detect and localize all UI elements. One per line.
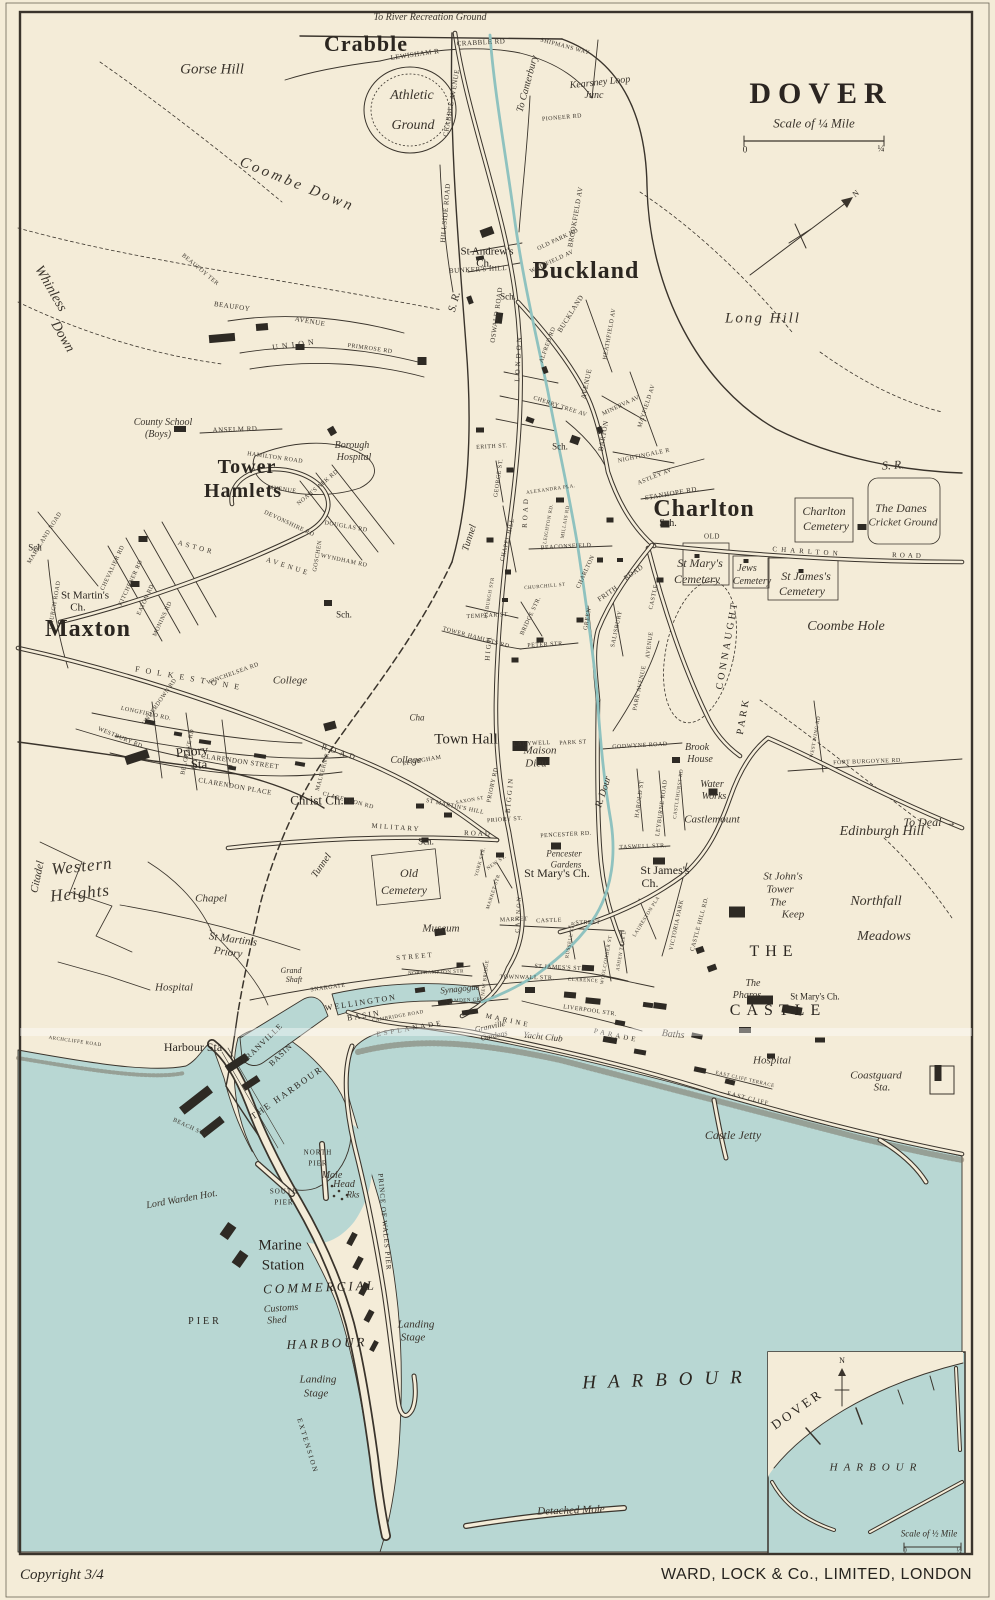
building-block bbox=[815, 1038, 825, 1043]
building-block bbox=[935, 1065, 942, 1081]
building-block bbox=[364, 1309, 375, 1322]
building-block bbox=[747, 996, 773, 1005]
building-block bbox=[502, 598, 508, 602]
building-block bbox=[476, 255, 485, 260]
building-block bbox=[466, 295, 473, 304]
building-block bbox=[513, 741, 528, 751]
building-block bbox=[131, 581, 140, 587]
building-block bbox=[296, 344, 305, 350]
building-block bbox=[661, 521, 670, 528]
building-block bbox=[569, 435, 580, 446]
inset-scale-half: ½ bbox=[956, 1548, 961, 1555]
building-block bbox=[582, 965, 594, 972]
building-block bbox=[744, 559, 749, 563]
inset-compass-north-label: N bbox=[839, 1357, 845, 1365]
building-block bbox=[695, 946, 705, 954]
building-block bbox=[327, 426, 337, 436]
building-block bbox=[209, 333, 236, 343]
building-block bbox=[352, 1256, 363, 1270]
building-block bbox=[615, 1020, 626, 1027]
publisher-imprint: WARD, LOCK & Co., LIMITED, LONDON bbox=[661, 1566, 972, 1584]
building-block bbox=[422, 838, 429, 843]
building-block bbox=[254, 753, 266, 759]
building-block bbox=[323, 721, 337, 732]
building-block bbox=[444, 813, 452, 818]
building-block bbox=[551, 843, 561, 850]
copyright-note: Copyright 3/4 bbox=[20, 1567, 104, 1584]
scale-bar-zero: 0 bbox=[743, 146, 748, 155]
building-block bbox=[295, 761, 306, 767]
map-page: CrabbleBucklandCharltonTowerHamletsMaxto… bbox=[0, 0, 995, 1600]
building-block bbox=[507, 468, 514, 473]
building-block bbox=[505, 570, 511, 575]
building-block bbox=[358, 1282, 369, 1296]
building-block bbox=[564, 991, 576, 998]
building-block bbox=[617, 558, 623, 562]
building-block bbox=[174, 731, 183, 736]
building-block bbox=[653, 1002, 667, 1010]
building-block bbox=[597, 558, 603, 563]
building-block bbox=[577, 618, 584, 623]
building-block bbox=[139, 536, 148, 542]
building-block bbox=[537, 638, 544, 643]
building-block bbox=[344, 798, 354, 805]
building-block bbox=[462, 1008, 479, 1015]
inset-scale-zero: 0 bbox=[903, 1548, 907, 1555]
scale-bar-label: Scale of ¼ Mile bbox=[773, 117, 855, 130]
building-block bbox=[496, 853, 504, 858]
fold-crease bbox=[20, 1028, 972, 1036]
building-block bbox=[124, 749, 150, 765]
building-block bbox=[767, 1054, 775, 1059]
building-block bbox=[657, 578, 664, 583]
building-block bbox=[537, 757, 550, 765]
building-block bbox=[709, 789, 718, 796]
building-block bbox=[729, 907, 745, 918]
scale-bar-quarter: ¼ bbox=[878, 145, 885, 154]
inset-harbour-label: HARBOUR bbox=[830, 1463, 923, 1474]
building-block bbox=[434, 928, 446, 936]
building-block bbox=[324, 600, 332, 606]
building-block bbox=[495, 312, 503, 324]
map-artwork bbox=[0, 0, 995, 1600]
building-block bbox=[585, 997, 601, 1005]
map-title: DOVER bbox=[749, 79, 892, 109]
building-block bbox=[256, 323, 269, 331]
building-block bbox=[199, 739, 211, 745]
building-block bbox=[512, 658, 519, 663]
building-block bbox=[174, 426, 186, 432]
building-block bbox=[476, 428, 484, 433]
building-block bbox=[799, 569, 804, 573]
inset-scale-label: Scale of ½ Mile bbox=[901, 1530, 957, 1539]
building-block bbox=[672, 757, 680, 763]
building-block bbox=[418, 357, 427, 365]
building-block bbox=[487, 538, 494, 543]
building-block bbox=[480, 226, 495, 238]
building-block bbox=[603, 1036, 618, 1044]
building-block bbox=[643, 1002, 654, 1008]
building-block bbox=[781, 1004, 802, 1015]
building-block bbox=[858, 524, 867, 530]
building-block bbox=[607, 518, 614, 523]
building-block bbox=[525, 987, 535, 993]
building-block bbox=[694, 1066, 707, 1073]
building-block bbox=[416, 804, 424, 809]
building-block bbox=[634, 1048, 647, 1055]
building-block bbox=[707, 964, 718, 973]
building-block bbox=[457, 963, 464, 968]
building-block bbox=[653, 858, 665, 865]
building-block bbox=[695, 554, 700, 558]
building-block bbox=[369, 1340, 379, 1352]
caption-row: Copyright 3/4 WARD, LOCK & Co., LIMITED,… bbox=[20, 1566, 972, 1584]
building-block bbox=[556, 498, 564, 503]
building-block bbox=[228, 765, 236, 770]
building-block bbox=[346, 1232, 357, 1246]
building-block bbox=[525, 416, 534, 423]
